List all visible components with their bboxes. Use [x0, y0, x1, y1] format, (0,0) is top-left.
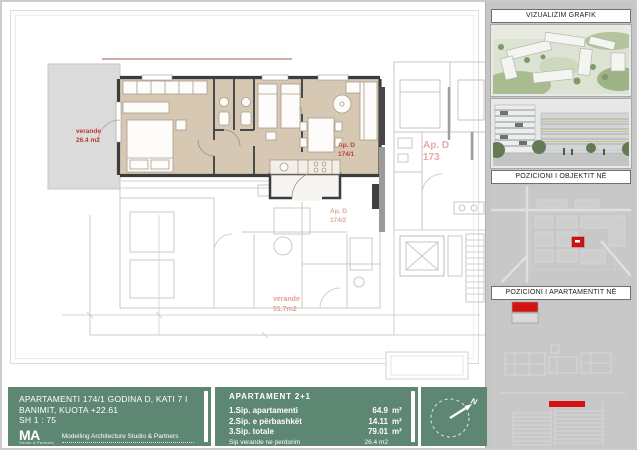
table-row: Sip verande ne perdorim 26.4 m2: [229, 438, 408, 449]
title-block: APARTAMENTI 174/1 GODINA D, KATI 7 I BAN…: [8, 387, 211, 446]
stairs: [466, 234, 484, 302]
drawing-sheet: verande26.4 m2 Ap. D174/1 Ap. D173 Ap. D…: [0, 0, 637, 450]
apartment-position-diagram: [491, 301, 631, 448]
floor-plan-drawing: [2, 2, 485, 387]
row-label: Sip verande ne perdorim: [229, 438, 352, 449]
area-table: APARTAMENT 2+1 1.Sip. apartamenti 64.9 m…: [215, 387, 418, 446]
row-label: 1.Sip. apartamenti: [229, 406, 352, 417]
compass-panel: N: [421, 387, 487, 446]
kitchen-counter: [270, 160, 340, 174]
aerial-render-drawing: [493, 27, 631, 94]
party-wall-dark: [379, 87, 385, 145]
table-row: 1.Sip. apartamenti 64.9 m²: [229, 406, 408, 417]
panel-divider: [204, 391, 208, 442]
apartment-number-label: Ap. D174/1: [338, 141, 355, 160]
logo-subtext: Studio & Partners: [19, 441, 54, 445]
row-unit: m²: [392, 427, 408, 438]
row-unit: m²: [392, 406, 408, 417]
row-unit: m²: [392, 417, 408, 428]
street-render-image: [491, 99, 631, 168]
logo-text: MA: [19, 429, 54, 441]
studio-name: Modelling Architecture Studio & Partners: [62, 433, 199, 440]
row-value: 79.01: [352, 427, 388, 438]
party-wall-gray: [379, 147, 385, 232]
row-value: 64.9: [352, 406, 388, 417]
lower-entrance-wall: [372, 184, 380, 209]
masterplan-map: [491, 186, 631, 283]
apartment-floor-marker: [549, 401, 585, 407]
aerial-render-image: [491, 25, 631, 96]
studio-logo: MA Studio & Partners: [19, 429, 54, 445]
entrance-vestibule: [270, 174, 340, 198]
area-table-title: APARTAMENT 2+1: [229, 392, 408, 401]
neighbor-apartment-label: Ap. D173: [423, 140, 449, 163]
lower-veranda-label: verande51.7m2: [273, 295, 300, 315]
masterplan-drawing: [491, 186, 631, 283]
table-row: 3.Sip. totale 79.01 m²: [229, 427, 408, 438]
scale-label: SH 1 : 75: [19, 415, 199, 426]
title-line-2: BANIMIT, KUOTA +22.61: [19, 405, 199, 416]
sidebar-section-title-masterplan: POZICIONI I OBJEKTIT NË MASTERPLAN: [491, 170, 631, 184]
lower-apartment-label: Ap. D174/2: [330, 207, 347, 226]
sidebar-section-title-visualization: VIZUALIZIM GRAFIK: [491, 9, 631, 23]
legend-box: [386, 352, 468, 379]
row-label: 2.Sip. e përbashkët: [229, 417, 352, 428]
title-line-1: APARTAMENTI 174/1 GODINA D, KATI 7 I: [19, 394, 199, 405]
row-value: 14.11: [352, 417, 388, 428]
floor-plan-area: verande26.4 m2 Ap. D174/1 Ap. D173 Ap. D…: [2, 2, 485, 387]
sidebar-section-title-position: POZICIONI I APARTAMENTIT NË OBJEKT: [491, 286, 631, 300]
graphics-sidebar: VIZUALIZIM GRAFIK: [485, 2, 636, 448]
contact-info-line: [62, 442, 194, 443]
row-label: 3.Sip. totale: [229, 427, 352, 438]
street-render-drawing: [493, 101, 631, 166]
panel-divider: [411, 391, 415, 442]
position-diagram-drawing: [491, 301, 631, 448]
table-row: 2.Sip. e përbashkët 14.11 m²: [229, 417, 408, 428]
veranda-area-label: verande26.4 m2: [76, 127, 101, 146]
row-value: 26.4 m2: [352, 438, 388, 449]
row-unit: [392, 438, 408, 449]
north-arrow-icon: [421, 387, 487, 446]
entrance-door-gap: [292, 196, 322, 201]
neighbor-dark-walls: [449, 87, 472, 160]
